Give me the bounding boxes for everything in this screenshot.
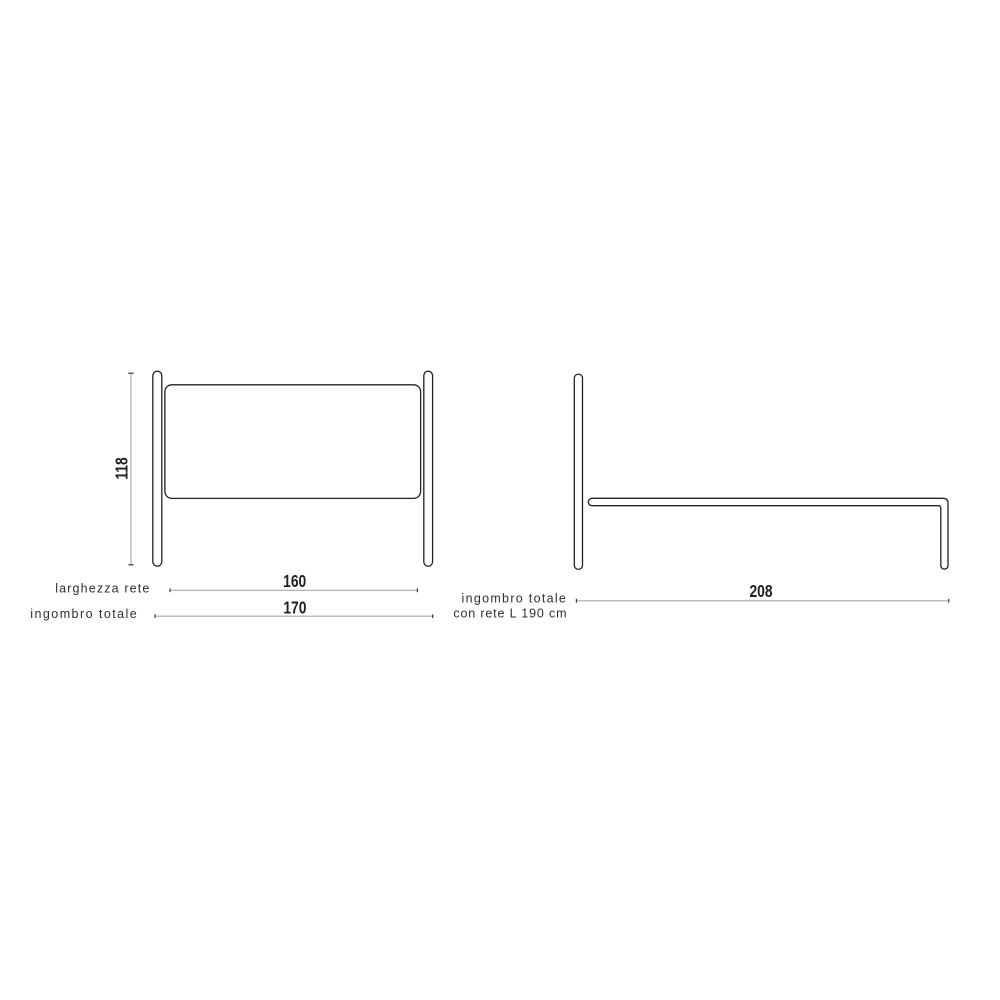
svg-text:160: 160: [283, 571, 306, 591]
svg-text:118: 118: [112, 457, 132, 479]
svg-text:larghezza rete: larghezza rete: [55, 582, 150, 596]
svg-text:170: 170: [283, 598, 306, 618]
svg-text:208: 208: [749, 581, 772, 601]
svg-text:ingombro totale: ingombro totale: [462, 591, 568, 605]
svg-text:ingombro totale: ingombro totale: [30, 607, 138, 621]
svg-text:con rete L 190 cm: con rete L 190 cm: [453, 606, 567, 620]
